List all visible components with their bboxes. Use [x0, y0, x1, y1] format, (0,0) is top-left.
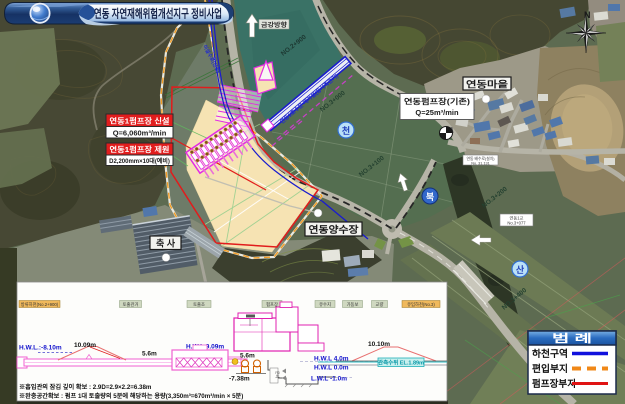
svg-text:편입부지: 편입부지 [532, 363, 568, 375]
svg-text:10.09m: 10.09m [74, 342, 96, 349]
svg-text:범 례: 범 례 [552, 331, 592, 345]
svg-text:방류하천(No.2+900): 방류하천(No.2+900) [21, 301, 59, 308]
svg-text:※완충공간확보 : 펌프 1대 토출량의 5분에 해당하는: ※완충공간확보 : 펌프 1대 토출량의 5분에 해당하는 용량(3,350m³… [19, 392, 243, 400]
svg-text:토출관거: 토출관거 [123, 301, 139, 308]
svg-text:교량: 교량 [376, 301, 384, 307]
svg-text:펌프장: 펌프장 [266, 301, 278, 307]
svg-text:유입하천(No.3): 유입하천(No.3) [407, 301, 435, 308]
svg-text:유수지: 유수지 [319, 301, 331, 308]
svg-text:가동보: 가동보 [347, 301, 359, 308]
svg-text:H.W.L.:-8.10m: H.W.L.:-8.10m [19, 345, 62, 352]
svg-text:하천구역: 하천구역 [532, 348, 568, 360]
svg-text:펌프장부지: 펌프장부지 [532, 378, 576, 390]
svg-text:문비: 문비 [275, 371, 280, 378]
svg-text:-7.38m: -7.38m [229, 376, 250, 383]
svg-text:L.W.L -1.0m: L.W.L -1.0m [311, 376, 347, 383]
svg-text:관측수위 EL.1.89m: 관측수위 EL.1.89m [378, 359, 424, 367]
svg-text:5.6m: 5.6m [240, 353, 255, 360]
svg-text:H.W.L 0.0m: H.W.L 0.0m [314, 365, 349, 372]
svg-text:5.6m: 5.6m [142, 351, 157, 358]
svg-text:토출조: 토출조 [193, 301, 205, 308]
svg-text:※흡입관의 잠김 깊이 확보 : 2.9D=2.9×2.2=: ※흡입관의 잠김 깊이 확보 : 2.9D=2.9×2.2=6.38m [19, 383, 152, 391]
